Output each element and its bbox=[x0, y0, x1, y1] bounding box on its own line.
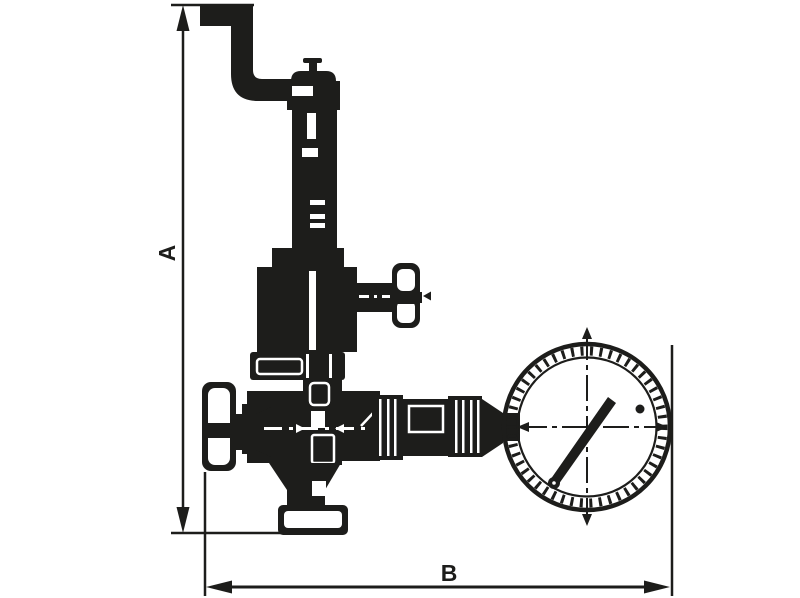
union-nut-2-ridge-3 bbox=[470, 400, 473, 453]
cap-slot bbox=[292, 86, 313, 96]
technical-drawing-canvas: A B bbox=[0, 0, 800, 598]
left-handwheel-hub bbox=[202, 423, 236, 438]
tube-detail-slot-1 bbox=[307, 113, 316, 139]
gauge-needle-hub-center bbox=[552, 481, 556, 485]
union-nut-1-ridge-1 bbox=[379, 399, 382, 456]
union-nut-2-ridge-4 bbox=[477, 400, 480, 453]
union-nut-2 bbox=[448, 396, 482, 457]
cap-dome bbox=[291, 71, 336, 81]
side-handwheel-rim-bottom bbox=[397, 301, 415, 323]
bonnet-flange-flat-1 bbox=[306, 354, 309, 378]
tube-detail-slot-5 bbox=[310, 223, 325, 228]
outlet-neck-cone bbox=[269, 463, 341, 490]
union-nut-2-ridge-2 bbox=[462, 400, 465, 453]
valve-technical-drawing: A B bbox=[0, 0, 800, 598]
bonnet-spindle-line bbox=[309, 271, 316, 350]
body-detail-slot bbox=[311, 411, 325, 428]
dimension-a-arrow-up bbox=[177, 5, 190, 31]
dimension-a-arrow-down bbox=[177, 507, 190, 533]
left-stem-cone bbox=[256, 407, 271, 457]
gauge-dial-pin bbox=[636, 405, 645, 414]
side-handwheel-rim-top bbox=[397, 269, 415, 291]
gauge-needle bbox=[548, 397, 616, 488]
tube-detail-slot-2 bbox=[302, 148, 318, 157]
union-nut-1-ridge-3 bbox=[394, 399, 397, 456]
left-stem bbox=[234, 414, 258, 450]
dimension-b-arrow-left bbox=[206, 581, 232, 594]
gauge-centerline-arrow-down bbox=[582, 514, 592, 526]
tube-detail-slot-3 bbox=[310, 200, 325, 205]
tube-detail-slot-4 bbox=[310, 214, 325, 219]
side-centerline-tick bbox=[423, 292, 431, 301]
collar bbox=[272, 248, 344, 267]
side-stem-end bbox=[414, 292, 422, 303]
reducer-cone bbox=[482, 399, 503, 457]
pressure-gauge bbox=[504, 327, 670, 526]
outlet-flange-slot bbox=[284, 511, 342, 528]
bonnet bbox=[257, 267, 357, 352]
union-nut-2-ridge-1 bbox=[455, 400, 458, 453]
dimension-b-arrow-right bbox=[644, 581, 670, 594]
bonnet-flange-flat-2 bbox=[329, 354, 332, 378]
gauge-centerline-arrow-up bbox=[582, 327, 592, 339]
outlet-neck-slot bbox=[312, 481, 326, 496]
gauge-centerline-arrow-right bbox=[656, 422, 668, 432]
dimension-a-label: A bbox=[154, 245, 180, 262]
gauge-connection bbox=[372, 395, 520, 460]
dimension-b-label: B bbox=[441, 560, 458, 586]
union-nut-1-ridge-2 bbox=[387, 399, 390, 456]
